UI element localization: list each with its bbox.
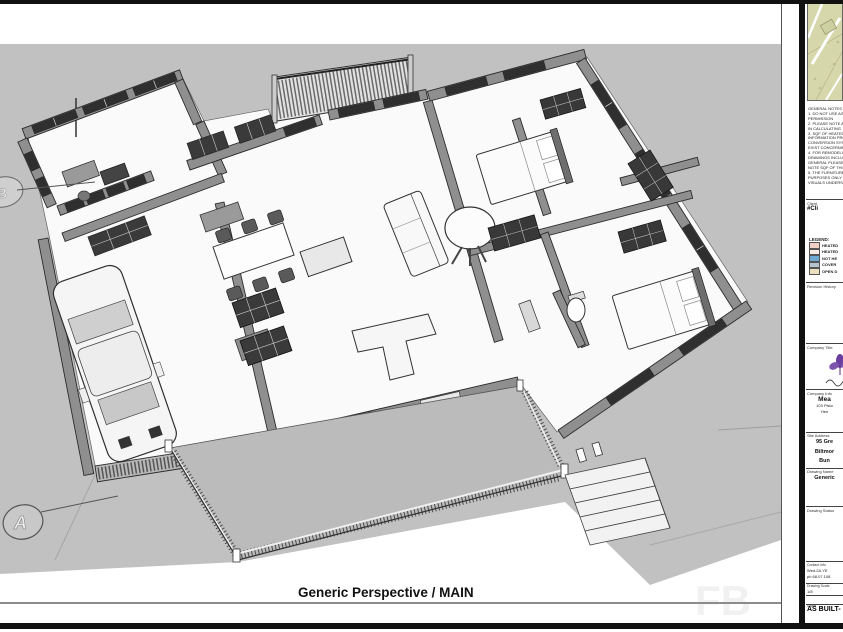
general-notes: GENERAL NOTES 1. DO NOT USE AS A PERMISS…: [808, 107, 843, 186]
drawing-sheet: B A FB Generic Perspective / MAIN: [0, 0, 843, 632]
view-title: Generic Perspective / MAIN: [298, 585, 474, 600]
company-name: Mea: [806, 396, 843, 403]
site-address-line1: 95 Gre: [806, 438, 843, 448]
client-value: #Cli: [807, 206, 843, 212]
site-address-line3: Bun: [806, 457, 843, 467]
watermark: FB: [695, 577, 751, 624]
drawing-status-label: Drawing Status: [806, 508, 843, 513]
sheet-border-bottom: [0, 623, 843, 629]
site-map-thumbnail: [807, 3, 843, 101]
title-block-border: [799, 3, 805, 624]
company-address-2: Hen: [806, 409, 843, 415]
marker-a-letter: A: [13, 513, 27, 533]
contact-line2: ph 68.07.108: [807, 574, 843, 580]
title-block-panel: GENERAL NOTES 1. DO NOT USE AS A PERMISS…: [806, 3, 843, 623]
revision-history-label: Revision History: [806, 284, 843, 289]
drawing-status-value: AS BUILT-: [806, 606, 843, 613]
perspective-drawing: B A FB Generic Perspective / MAIN: [0, 0, 800, 632]
toilet: [567, 291, 585, 322]
legend-swatch-opendeck: [809, 268, 820, 275]
marker-b-letter: B: [0, 185, 7, 201]
scale-value: 1/8: [807, 589, 843, 595]
site-address-line2: Biltmor: [806, 448, 843, 458]
company-title-label: Company Title: [806, 345, 843, 350]
sheet-border-top: [0, 0, 843, 4]
drawing-area-right-border: [781, 4, 782, 623]
company-logo: [806, 353, 843, 389]
legend: LEGEND: HEATED HEATED NOT HE COVER OPEN …: [809, 237, 843, 275]
drawing-name-value: Generic: [806, 474, 843, 484]
